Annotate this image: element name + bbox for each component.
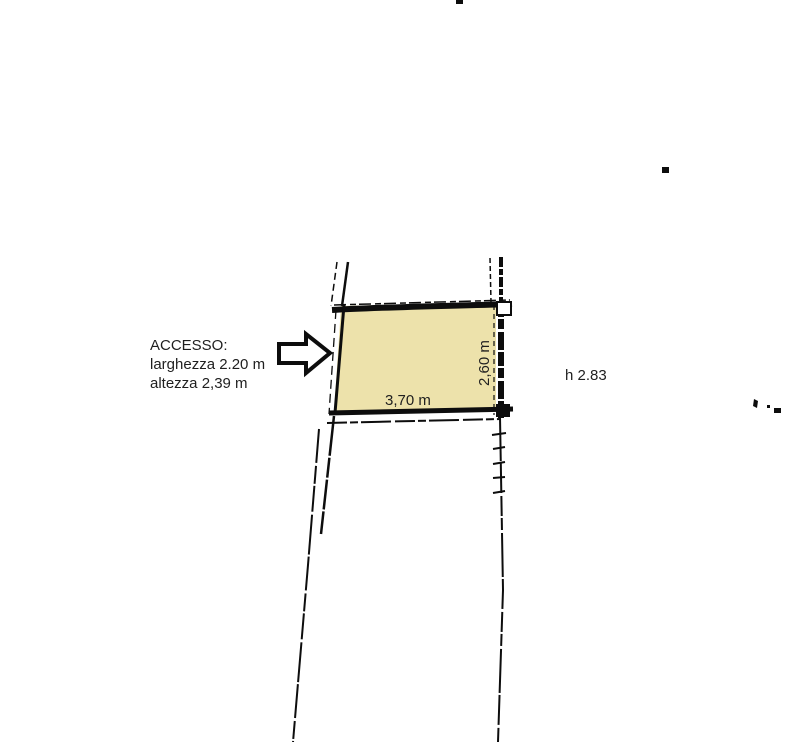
wall-junction-notch <box>497 302 511 315</box>
room-depth-label: 2,60 m <box>476 340 493 386</box>
floor-plan-drawing: ACCESSO: larghezza 2.20 m altezza 2,39 m… <box>0 0 805 742</box>
room-width-label: 3,70 m <box>385 392 431 409</box>
boundary-below-left-short <box>321 416 334 534</box>
wall-bottom-sketch <box>327 419 500 423</box>
access-note-height: altezza 2,39 m <box>150 375 248 392</box>
scan-artifacts <box>456 0 781 413</box>
scanned-floor-plan: ACCESSO: larghezza 2.20 m altezza 2,39 m… <box>0 0 805 742</box>
room-ceiling-height-label: h 2.83 <box>565 367 607 384</box>
access-note-width: larghezza 2.20 m <box>150 356 265 373</box>
boundary-above-left-solid <box>342 262 348 306</box>
boundary-above-right-thin <box>490 258 491 302</box>
wall-hatch-ticks <box>492 433 506 493</box>
boundary-above-left-dashed <box>331 262 337 306</box>
wall-junction-block <box>496 404 510 417</box>
access-note-title: ACCESSO: <box>150 337 228 354</box>
access-arrow-icon <box>279 334 330 373</box>
boundary-below-left-long <box>293 429 319 742</box>
boundary-below-right-long <box>498 417 503 742</box>
